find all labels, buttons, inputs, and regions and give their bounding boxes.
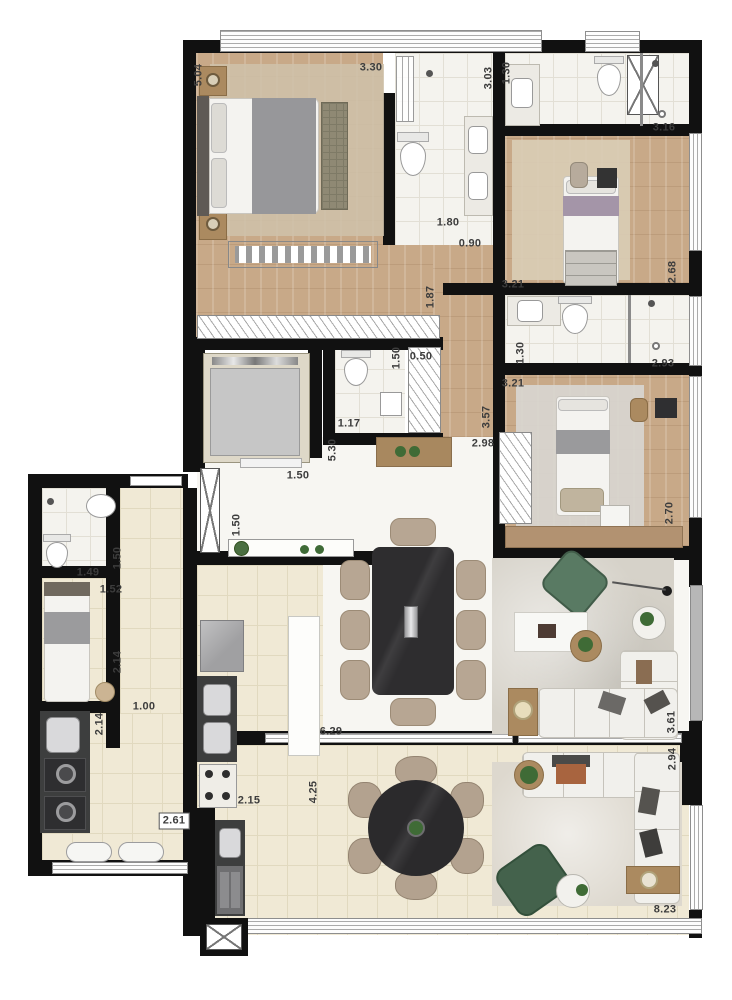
service-bed-headboard	[44, 582, 90, 596]
door-service-entry	[130, 476, 182, 486]
wall-kitchen-left	[183, 488, 197, 818]
toilet	[558, 296, 592, 304]
drying-rack	[66, 842, 112, 862]
master-bed-runner	[252, 98, 316, 214]
desk-chair	[570, 162, 588, 188]
dimension-label: 2.94	[668, 748, 679, 771]
table-lamp-icon	[206, 73, 220, 87]
dimension-label: 2.98	[472, 439, 495, 450]
wardrobe-low	[505, 526, 683, 548]
wall-masterbed-bath	[383, 93, 395, 245]
pillow	[211, 103, 227, 153]
service-bed-blanket	[44, 612, 90, 644]
dimension-label: 3.21	[502, 280, 525, 291]
bar-sink	[219, 828, 241, 858]
bed3-blanket	[556, 430, 610, 454]
sliding-door-living	[690, 585, 703, 721]
cushion	[556, 764, 586, 784]
burner-icon	[205, 792, 213, 800]
refrigerator	[200, 620, 244, 672]
plant-icon	[315, 545, 324, 554]
bed2-blanket	[563, 196, 619, 216]
master-bed-headboard	[197, 96, 209, 216]
floor-drain-icon	[658, 110, 666, 118]
dimension-label: 1.52	[100, 585, 123, 596]
tray-icon	[538, 624, 556, 638]
dimension-label: 4.25	[309, 781, 320, 804]
window-bath2-top	[585, 31, 640, 52]
dimension-label: 1.17	[338, 419, 361, 430]
dimension-label: 1.87	[426, 286, 437, 309]
dimension-label: 2.14	[113, 651, 124, 674]
dimension-label: 2.14	[95, 713, 106, 736]
toilet	[341, 350, 371, 358]
dimension-label: 1.50	[392, 347, 403, 370]
dimension-label: 2.68	[668, 261, 679, 284]
plant-icon	[576, 884, 588, 896]
table-runner	[404, 606, 418, 638]
wall-corridor-left	[106, 488, 120, 748]
dining-chair	[456, 560, 486, 600]
shower-partition	[640, 53, 643, 126]
dimension-label: 5.04	[194, 64, 205, 87]
shower-head-icon	[426, 70, 433, 77]
desk-chair	[630, 398, 648, 422]
plant-icon	[234, 541, 249, 556]
plant-icon	[520, 766, 538, 784]
dimension-label: 3.61	[667, 711, 678, 734]
wall-left-upper	[183, 40, 196, 350]
sink	[86, 494, 116, 518]
toilet	[594, 56, 624, 64]
dimension-label: 1.30	[516, 342, 527, 365]
dimension-label: 3.30	[360, 63, 383, 74]
dimension-label: 2.70	[665, 502, 676, 525]
plant-icon	[300, 545, 309, 554]
hall-side-door	[200, 468, 220, 553]
pillow	[558, 399, 608, 411]
shower-glass	[396, 56, 414, 122]
dimension-label: 3.03	[484, 67, 495, 90]
plant-icon	[395, 446, 406, 457]
sink	[511, 78, 533, 108]
sink	[203, 722, 231, 754]
dimension-label: 0.50	[410, 352, 433, 363]
wardrobe	[499, 432, 532, 524]
sink	[203, 684, 231, 716]
dimension-label: 0.90	[459, 239, 482, 250]
closet-shelf	[197, 315, 440, 339]
dimension-label: 5.30	[328, 439, 339, 462]
plant-icon	[578, 637, 593, 652]
dimension-label: 3.57	[482, 406, 493, 429]
pillow	[560, 488, 604, 512]
dryer-door-icon	[56, 802, 76, 822]
burner-icon	[205, 770, 213, 778]
side-table	[600, 505, 630, 527]
sink	[468, 126, 488, 154]
plant-icon	[407, 819, 425, 837]
window-bedroom2	[689, 133, 702, 251]
wall-right-post-mid	[689, 721, 702, 747]
elevator-door	[212, 357, 298, 365]
stove	[199, 764, 237, 808]
shower-partition	[628, 295, 631, 363]
dimension-label: 2.93	[652, 359, 675, 370]
laundry-sink	[46, 717, 80, 753]
sink	[517, 300, 543, 322]
shower-head-icon	[648, 300, 655, 307]
kitchen-island	[288, 616, 320, 756]
stool	[95, 682, 115, 702]
bed2-foot-bench	[565, 250, 617, 286]
plant-icon	[640, 612, 654, 626]
floor-plan: 5.043.303.031.303.161.800.902.681.873.21…	[0, 0, 732, 1000]
dimension-label: 1.49	[77, 568, 100, 579]
desk-monitor-icon	[597, 168, 617, 188]
pillow	[211, 158, 227, 208]
wall-hall-bed2	[493, 53, 505, 288]
bench-ottoman	[321, 102, 348, 210]
window-master-top	[220, 30, 542, 52]
balcony-parapet	[215, 918, 702, 934]
closet-hanger-rack	[228, 241, 378, 268]
dining-chair	[390, 698, 436, 726]
burner-icon	[222, 792, 230, 800]
wall-elevator-right	[308, 350, 322, 458]
dimension-label: 2.61	[159, 813, 190, 830]
grill-door	[231, 872, 240, 908]
shower-head-icon	[652, 60, 659, 67]
wall-elevator-left	[183, 350, 205, 472]
cushion	[636, 660, 652, 684]
toilet	[397, 132, 429, 142]
dining-chair	[390, 518, 436, 546]
grill-door	[220, 872, 229, 908]
dimension-label: 6.29	[320, 727, 343, 738]
dining-chair	[340, 660, 370, 700]
sink	[380, 392, 402, 416]
burner-icon	[222, 770, 230, 778]
elevator-cab	[210, 368, 300, 456]
washer-door-icon	[56, 764, 76, 784]
dimension-label: 1.50	[113, 547, 124, 570]
elevator-threshold	[240, 458, 302, 468]
window-laundry	[52, 862, 188, 874]
dimension-label: 1.80	[437, 218, 460, 229]
table-lamp-icon	[513, 700, 533, 720]
dimension-label: 1.50	[287, 471, 310, 482]
sink	[468, 172, 488, 200]
window-balcony-right	[690, 805, 703, 910]
table-lamp-icon	[640, 871, 658, 889]
desk-monitor-icon	[655, 398, 677, 418]
dining-chair	[456, 610, 486, 650]
drying-rack	[118, 842, 164, 862]
window-bath3	[689, 296, 702, 366]
dimension-label: 1.30	[502, 62, 513, 85]
shaft-bottom	[206, 924, 242, 950]
toilet	[43, 534, 71, 542]
dimension-label: 3.21	[502, 379, 525, 390]
plant-icon	[409, 446, 420, 457]
window-bedroom3	[689, 376, 702, 518]
table-lamp-icon	[206, 217, 220, 231]
dimension-label: 2.15	[238, 796, 261, 807]
dimension-label: 8.23	[654, 905, 677, 916]
wall-balcony-right-post	[680, 745, 702, 805]
dining-chair	[340, 560, 370, 600]
dining-chair	[456, 660, 486, 700]
dimension-label: 1.50	[232, 514, 243, 537]
wall-powder-left	[323, 345, 335, 435]
dimension-label: 3.16	[653, 123, 676, 134]
dimension-label: 1.00	[133, 702, 156, 713]
dining-chair	[340, 610, 370, 650]
floor-drain-icon	[652, 342, 660, 350]
shower-head-icon	[47, 498, 54, 505]
